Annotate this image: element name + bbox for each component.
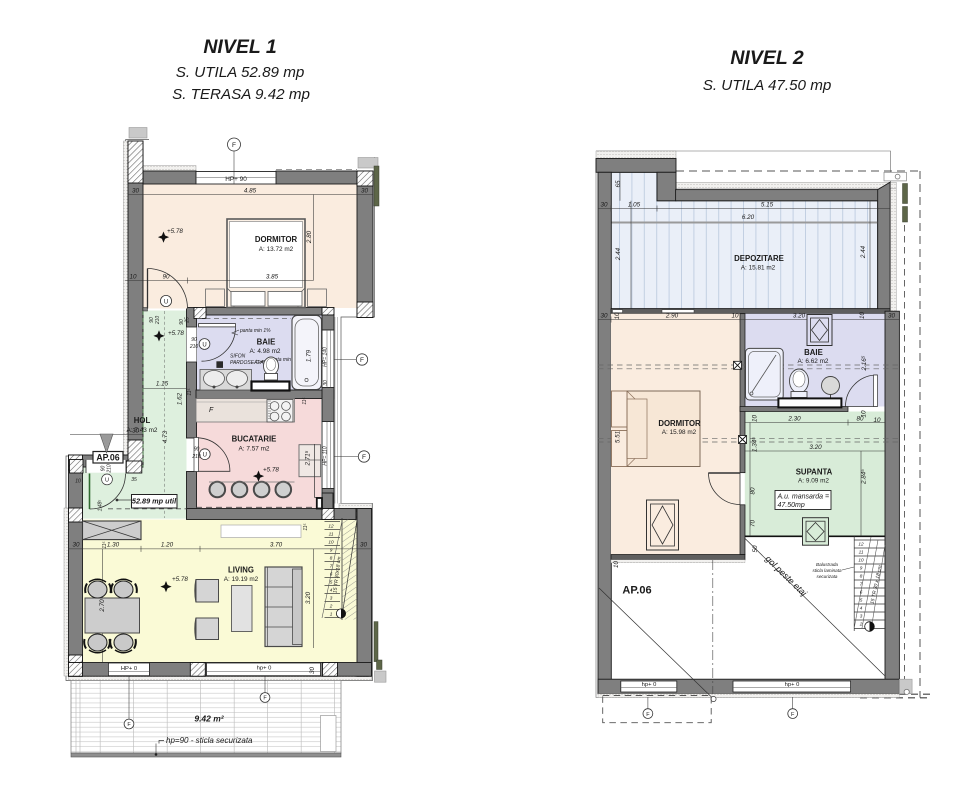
svg-text:10: 10 (75, 479, 81, 485)
svg-text:11⁵: 11⁵ (302, 397, 308, 404)
svg-text:10: 10 (859, 312, 866, 320)
svg-text:4.73: 4.73 (162, 430, 169, 443)
svg-text:NIVEL 1: NIVEL 1 (203, 36, 276, 58)
svg-text:8: 8 (860, 574, 863, 579)
svg-text:U: U (202, 342, 206, 348)
svg-text:6: 6 (330, 571, 333, 576)
svg-text:BAIE: BAIE (257, 338, 276, 347)
svg-text:9: 9 (860, 566, 863, 571)
svg-text:U: U (105, 478, 109, 484)
svg-text:2.90: 2.90 (665, 313, 679, 320)
svg-text:210: 210 (155, 316, 161, 326)
svg-text:30: 30 (132, 428, 140, 435)
svg-text:2: 2 (859, 622, 863, 627)
svg-text:A.u. mansarda =: A.u. mansarda = (777, 494, 830, 501)
svg-text:Balustrada: Balustrada (816, 562, 838, 567)
svg-text:47.50mp: 47.50mp (778, 502, 805, 509)
svg-text:9.42 m²: 9.42 m² (194, 714, 224, 724)
svg-text:10: 10 (752, 415, 759, 423)
svg-text:30: 30 (132, 188, 140, 195)
svg-text:1: 1 (330, 611, 333, 616)
svg-text:BAIE: BAIE (804, 348, 823, 357)
svg-text:30: 30 (323, 380, 329, 386)
svg-text:30: 30 (309, 667, 316, 675)
svg-text:hp+ 0: hp+ 0 (257, 666, 272, 672)
svg-text:210: 210 (191, 454, 201, 460)
svg-text:F: F (360, 357, 364, 364)
svg-text:1.20: 1.20 (161, 542, 174, 549)
svg-text:3.20: 3.20 (793, 313, 806, 320)
svg-text:10: 10 (873, 417, 881, 424)
svg-text:HP+ 90: HP+ 90 (225, 176, 247, 183)
svg-text:3: 3 (860, 614, 863, 619)
svg-text:5: 5 (860, 598, 863, 603)
svg-text:A: 15.98 m2: A: 15.98 m2 (662, 429, 697, 436)
svg-text:80: 80 (750, 487, 757, 495)
svg-text:10: 10 (129, 274, 137, 281)
svg-text:A: 4.98 m2: A: 4.98 m2 (250, 348, 281, 355)
svg-text:+5.78: +5.78 (263, 467, 279, 474)
svg-text:1.30: 1.30 (107, 542, 120, 549)
svg-text:10: 10 (731, 313, 739, 320)
svg-text:HP= 110: HP= 110 (323, 446, 329, 465)
svg-text:hp=90 - sticla securizata: hp=90 - sticla securizata (166, 736, 253, 745)
svg-text:6: 6 (860, 590, 863, 595)
svg-text:5.51: 5.51 (615, 431, 622, 443)
svg-text:10: 10 (614, 312, 621, 320)
svg-text:F: F (362, 454, 366, 461)
svg-text:hp+ 0: hp+ 0 (785, 682, 800, 688)
svg-text:3.20: 3.20 (305, 591, 312, 604)
svg-text:+5.78: +5.78 (168, 330, 184, 337)
svg-text:hp+ 0: hp+ 0 (642, 682, 657, 688)
svg-text:6.20: 6.20 (742, 214, 755, 221)
svg-text:1.34⁵: 1.34⁵ (752, 437, 759, 452)
svg-text:A: 6.62 m2: A: 6.62 m2 (798, 358, 829, 365)
svg-text:sticla laminata: sticla laminata (812, 568, 842, 573)
svg-text:10: 10 (328, 539, 334, 544)
svg-text:+5.78: +5.78 (167, 228, 183, 235)
svg-text:DORMITOR: DORMITOR (255, 235, 298, 244)
svg-text:30: 30 (888, 313, 896, 320)
svg-text:3.20: 3.20 (809, 444, 822, 451)
svg-text:SUPANTA: SUPANTA (796, 468, 833, 477)
svg-text:5: 5 (330, 579, 333, 584)
svg-text:AP.06: AP.06 (96, 453, 119, 463)
svg-text:securizata: securizata (817, 574, 838, 579)
svg-text:52.89 mp util: 52.89 mp util (132, 497, 177, 506)
svg-text:90: 90 (191, 337, 197, 343)
svg-text:2.16⁵: 2.16⁵ (861, 355, 868, 371)
svg-text:70: 70 (750, 520, 757, 528)
svg-text:+5.78: +5.78 (172, 576, 188, 583)
svg-text:2.70: 2.70 (99, 599, 106, 613)
svg-text:7: 7 (860, 582, 863, 587)
svg-text:65: 65 (615, 180, 622, 188)
svg-text:1.62: 1.62 (177, 392, 184, 405)
svg-text:30: 30 (72, 542, 80, 549)
svg-text:A: 9.09 m2: A: 9.09 m2 (798, 478, 829, 485)
svg-text:8: 8 (330, 555, 333, 560)
svg-text:1.48⁵: 1.48⁵ (98, 500, 104, 512)
svg-text:3: 3 (330, 595, 333, 600)
svg-text:30: 30 (361, 188, 369, 195)
svg-text:U: U (164, 299, 168, 305)
svg-text:90: 90 (162, 274, 170, 281)
svg-text:DORMITOR: DORMITOR (658, 419, 701, 428)
svg-text:10: 10 (861, 410, 868, 418)
svg-text:2.30: 2.30 (787, 416, 801, 423)
svg-text:25: 25 (185, 317, 191, 324)
svg-text:11: 11 (859, 550, 864, 555)
svg-text:3.70: 3.70 (270, 542, 283, 549)
svg-text:30: 30 (360, 542, 368, 549)
svg-text:1.05: 1.05 (628, 202, 641, 209)
svg-text:90: 90 (179, 319, 185, 325)
svg-text:HP+ 0: HP+ 0 (121, 666, 137, 672)
svg-text:5.15: 5.15 (761, 202, 774, 209)
svg-text:LIVING: LIVING (228, 566, 254, 575)
svg-text:A: 7.57 m2: A: 7.57 m2 (239, 446, 270, 453)
svg-text:2: 2 (329, 603, 333, 608)
svg-text:U: U (203, 453, 207, 459)
svg-text:9: 9 (330, 547, 333, 552)
svg-text:S. UTILA 52.89 mp: S. UTILA 52.89 mp (176, 64, 305, 81)
svg-text:11⁵: 11⁵ (102, 541, 108, 548)
svg-text:4: 4 (860, 606, 863, 611)
svg-text:HOL: HOL (134, 416, 151, 425)
svg-text:35: 35 (131, 477, 137, 483)
svg-text:2.84⁵: 2.84⁵ (861, 469, 868, 485)
svg-text:S. TERASA 9.42 mp: S. TERASA 9.42 mp (172, 86, 310, 103)
svg-text:F: F (209, 407, 214, 414)
svg-text:A: 19.19 m2: A: 19.19 m2 (224, 576, 259, 583)
svg-text:F: F (232, 142, 236, 149)
svg-text:12: 12 (328, 523, 334, 528)
svg-text:2.80: 2.80 (306, 230, 313, 244)
svg-text:12: 12 (858, 542, 864, 547)
svg-text:7: 7 (330, 563, 333, 568)
svg-text:11⁵: 11⁵ (303, 523, 309, 530)
svg-text:11: 11 (329, 531, 334, 536)
svg-text:NIVEL 2: NIVEL 2 (730, 47, 803, 69)
svg-text:210: 210 (189, 344, 199, 350)
svg-text:4.85: 4.85 (244, 188, 257, 195)
svg-text:30: 30 (600, 313, 608, 320)
svg-text:A: 15.81 m2: A: 15.81 m2 (741, 265, 776, 272)
svg-text:10: 10 (613, 561, 620, 569)
svg-text:2.44: 2.44 (615, 247, 622, 261)
svg-text:11⁵: 11⁵ (187, 388, 193, 395)
svg-text:S. UTILA 47.50 mp: S. UTILA 47.50 mp (703, 77, 832, 94)
svg-text:1.79: 1.79 (306, 349, 313, 362)
svg-text:panta min 1%: panta min 1% (239, 328, 271, 334)
svg-text:BUCATARIE: BUCATARIE (232, 435, 277, 444)
svg-text:DEPOZITARE: DEPOZITARE (734, 254, 784, 263)
svg-text:90: 90 (194, 447, 200, 453)
svg-text:SIFON: SIFON (230, 354, 246, 360)
svg-text:2.44: 2.44 (860, 245, 867, 259)
svg-text:210: 210 (107, 464, 113, 474)
svg-text:30: 30 (600, 202, 608, 209)
svg-text:2.71⁵: 2.71⁵ (305, 450, 312, 466)
svg-text:1.15: 1.15 (156, 381, 169, 388)
svg-text:HP= 140: HP= 140 (323, 347, 329, 367)
svg-text:AP.06: AP.06 (622, 585, 651, 597)
svg-text:3.85: 3.85 (266, 274, 279, 281)
svg-text:10: 10 (858, 558, 864, 563)
svg-text:A: 13.72 m2: A: 13.72 m2 (259, 246, 294, 253)
